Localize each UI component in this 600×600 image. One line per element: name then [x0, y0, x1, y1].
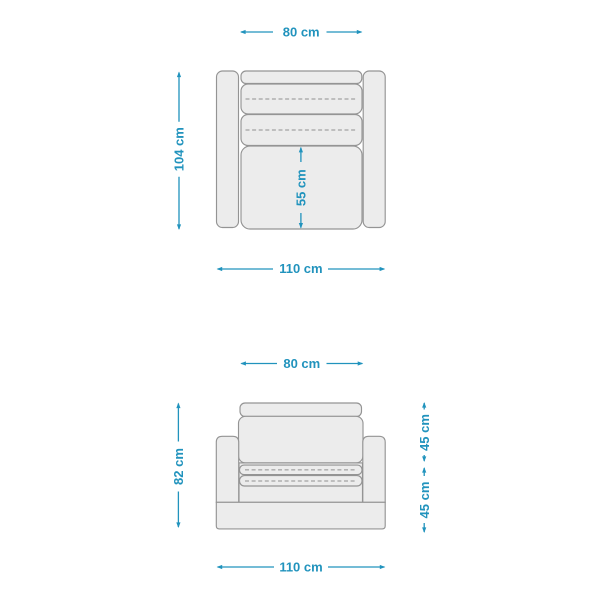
- svg-text:80 cm: 80 cm: [283, 356, 320, 371]
- svg-text:110 cm: 110 cm: [279, 261, 322, 276]
- svg-text:55 cm: 55 cm: [294, 169, 309, 206]
- svg-text:45 cm: 45 cm: [417, 482, 432, 519]
- svg-text:104 cm: 104 cm: [172, 127, 187, 171]
- svg-text:80 cm: 80 cm: [283, 25, 320, 40]
- svg-text:82 cm: 82 cm: [171, 448, 186, 485]
- svg-text:110 cm: 110 cm: [279, 560, 322, 575]
- svg-text:45 cm: 45 cm: [417, 414, 432, 451]
